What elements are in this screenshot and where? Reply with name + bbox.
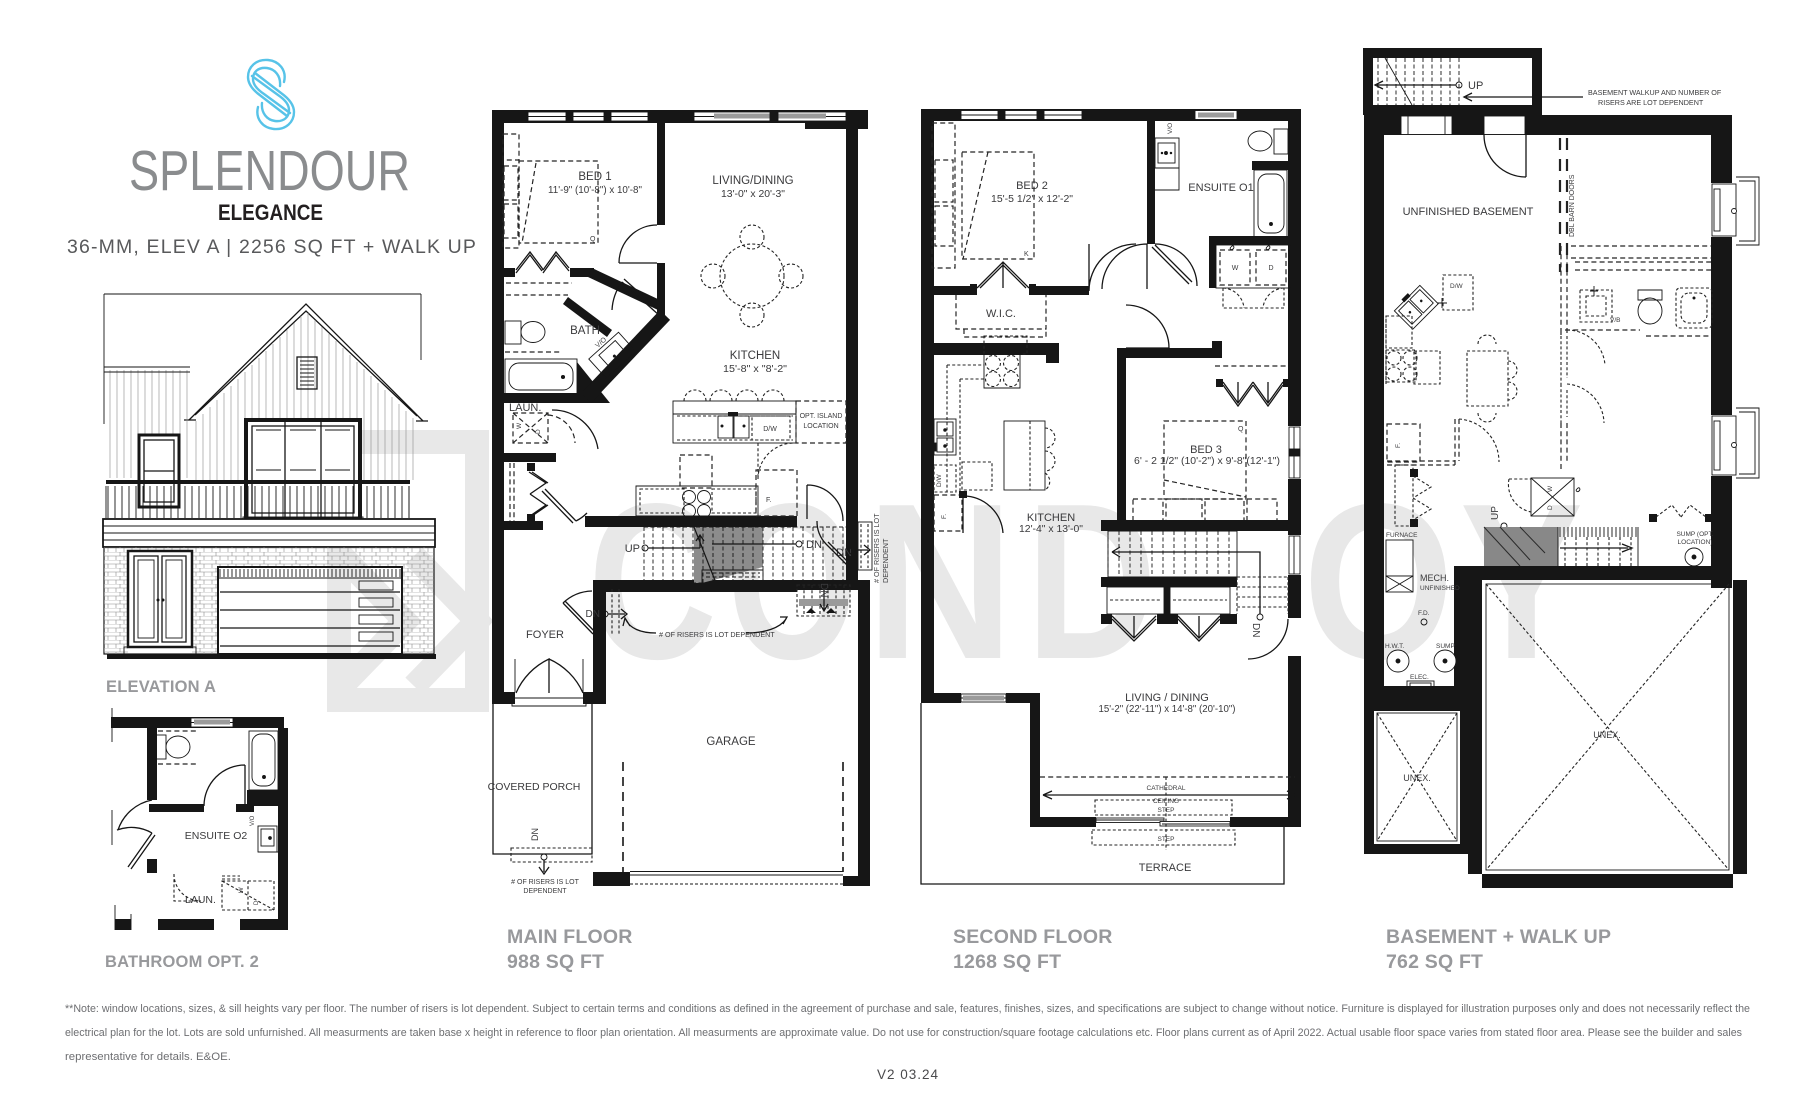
svg-text:**Note: window locations, size: **Note: window locations, sizes, & sill … — [65, 1003, 1750, 1015]
svg-text:11'-9" (10'-8") x 10'-8": 11'-9" (10'-8") x 10'-8" — [548, 185, 642, 196]
svg-text:SUMP: SUMP — [1436, 643, 1455, 650]
svg-text:LAUN.: LAUN. — [509, 402, 541, 414]
svg-text:W: W — [1547, 485, 1554, 492]
svg-text:BASEMENT WALKUP AND NUMBER OF: BASEMENT WALKUP AND NUMBER OF — [1588, 88, 1722, 97]
svg-text:KITCHEN: KITCHEN — [1027, 512, 1075, 524]
svg-text:D: D — [254, 900, 260, 905]
svg-text:Q: Q — [1238, 426, 1244, 433]
svg-text:W: W — [1232, 265, 1239, 272]
svg-text:BED 1: BED 1 — [578, 171, 611, 183]
svg-text:W: W — [516, 422, 523, 429]
svg-text:STEP: STEP — [1158, 807, 1175, 814]
svg-text:V/O: V/O — [250, 815, 256, 826]
svg-text:FOYER: FOYER — [526, 629, 564, 641]
svg-text:K: K — [1024, 251, 1029, 258]
svg-text:BATHROOM OPT. 2: BATHROOM OPT. 2 — [105, 953, 259, 971]
svg-text:SPLENDOUR: SPLENDOUR — [129, 139, 410, 203]
svg-text:STEP: STEP — [1158, 836, 1175, 843]
svg-text:DN: DN — [806, 539, 822, 551]
svg-text:15'-8" x "8'-2": 15'-8" x "8'-2" — [723, 364, 787, 375]
svg-text:13'-0" x 20'-3": 13'-0" x 20'-3" — [721, 189, 785, 200]
svg-text:SECOND FLOOR: SECOND FLOOR — [953, 926, 1113, 948]
svg-text:CEILING: CEILING — [1153, 798, 1179, 805]
svg-text:BED 2: BED 2 — [1016, 180, 1048, 192]
svg-text:DEPENDENT: DEPENDENT — [881, 538, 890, 583]
svg-text:D: D — [1268, 265, 1273, 272]
svg-text:BED 3: BED 3 — [1190, 444, 1222, 456]
svg-text:6' - 2 1/2" (10'-2") x 9'-8"(1: 6' - 2 1/2" (10'-2") x 9'-8"(12'-1") — [1134, 456, 1280, 467]
svg-text:LAUN.: LAUN. — [185, 894, 216, 906]
svg-text:DN: DN — [1250, 623, 1261, 637]
svg-text:15'-5 1/2" x 12'-2": 15'-5 1/2" x 12'-2" — [991, 194, 1073, 205]
svg-text:DN: DN — [586, 609, 600, 620]
svg-text:F.: F. — [941, 514, 948, 519]
svg-text:LOCATION): LOCATION) — [1678, 539, 1713, 546]
svg-text:LOCATION: LOCATION — [803, 423, 838, 430]
svg-text:CATHEDRAL: CATHEDRAL — [1147, 785, 1186, 792]
svg-text:UNFINISHED BASEMENT: UNFINISHED BASEMENT — [1403, 206, 1534, 218]
svg-text:F.: F. — [766, 497, 772, 504]
svg-text:D/W: D/W — [1450, 283, 1464, 290]
svg-text:762 SQ FT: 762 SQ FT — [1386, 951, 1483, 973]
svg-text:ELEC.: ELEC. — [1410, 674, 1429, 681]
svg-text:36-MM, ELEV A | 2256 SQ FT + W: 36-MM, ELEV A | 2256 SQ FT + WALK UP — [67, 236, 477, 258]
svg-text:DBL BARN DOORS: DBL BARN DOORS — [1569, 174, 1576, 237]
svg-text:12'-4" x 13'-0": 12'-4" x 13'-0" — [1019, 524, 1083, 535]
svg-text:UP: UP — [1468, 80, 1483, 92]
svg-text:F.: F. — [1395, 443, 1402, 448]
svg-text:V/O: V/O — [1167, 123, 1174, 134]
svg-text:LIVING/DINING: LIVING/DINING — [712, 175, 793, 187]
svg-text:TERRACE: TERRACE — [1139, 862, 1192, 874]
svg-text:15'-2" (22'-11") x 14'-8" (20': 15'-2" (22'-11") x 14'-8" (20'-10") — [1099, 704, 1236, 715]
svg-text:RISERS ARE LOT DEPENDENT: RISERS ARE LOT DEPENDENT — [1598, 98, 1704, 107]
svg-text:ENSUITE O2: ENSUITE O2 — [185, 830, 248, 842]
svg-text:ENSUITE O1: ENSUITE O1 — [1188, 182, 1253, 194]
svg-text:UNEX.: UNEX. — [1593, 730, 1621, 740]
svg-text:electrical plan for the lot. L: electrical plan for the lot. Lots are so… — [65, 1027, 1742, 1039]
svg-text:representative for details. E&: representative for details. E&OE. — [65, 1051, 231, 1063]
svg-text:GARAGE: GARAGE — [706, 736, 756, 748]
svg-text:988 SQ FT: 988 SQ FT — [507, 951, 604, 973]
svg-text:W: W — [239, 887, 245, 893]
svg-text:OPT. ISLAND: OPT. ISLAND — [800, 413, 843, 420]
svg-text:DN: DN — [530, 828, 540, 841]
svg-text:DEPENDENT: DEPENDENT — [523, 888, 567, 895]
svg-text:COVERED PORCH: COVERED PORCH — [488, 781, 581, 793]
svg-text:KITCHEN: KITCHEN — [730, 350, 780, 362]
svg-text:UNEX.: UNEX. — [1403, 773, 1431, 783]
svg-text:# OF RISERS IS LOT: # OF RISERS IS LOT — [872, 513, 881, 583]
svg-text:# OF RISERS IS LOT: # OF RISERS IS LOT — [511, 879, 579, 886]
svg-text:D/W: D/W — [763, 426, 777, 433]
svg-text:1268 SQ FT: 1268 SQ FT — [953, 951, 1061, 973]
svg-text:F.D.: F.D. — [1418, 610, 1430, 617]
svg-text:MECH.: MECH. — [1420, 573, 1449, 583]
svg-text:BATH: BATH — [570, 325, 600, 337]
svg-text:V/B: V/B — [1610, 317, 1620, 324]
svg-text:DN: DN — [818, 583, 829, 597]
svg-text:D/W: D/W — [936, 474, 943, 488]
svg-text:LIVING / DINING: LIVING / DINING — [1125, 692, 1209, 704]
svg-text:H.W.T.: H.W.T. — [1385, 643, 1404, 650]
svg-text:UNFINISHED: UNFINISHED — [1420, 585, 1460, 592]
svg-text:ELEVATION A: ELEVATION A — [106, 678, 216, 696]
svg-text:D: D — [1547, 505, 1554, 510]
svg-text:UP: UP — [625, 543, 640, 555]
svg-text:Q: Q — [590, 236, 596, 243]
svg-text:BASEMENT + WALK UP: BASEMENT + WALK UP — [1386, 926, 1611, 948]
svg-text:MAIN FLOOR: MAIN FLOOR — [507, 926, 632, 948]
svg-text:UP: UP — [1490, 506, 1501, 520]
svg-text:SUMP (OPT.: SUMP (OPT. — [1676, 531, 1713, 538]
svg-text:# OF RISERS IS LOT DEPENDENT: # OF RISERS IS LOT DEPENDENT — [659, 630, 775, 639]
svg-text:FURNACE: FURNACE — [1386, 532, 1418, 539]
svg-text:V2 03.24: V2 03.24 — [877, 1067, 939, 1082]
svg-text:D: D — [535, 429, 542, 434]
svg-text:ELEGANCE: ELEGANCE — [218, 200, 323, 225]
svg-text:W.I.C.: W.I.C. — [986, 308, 1016, 320]
